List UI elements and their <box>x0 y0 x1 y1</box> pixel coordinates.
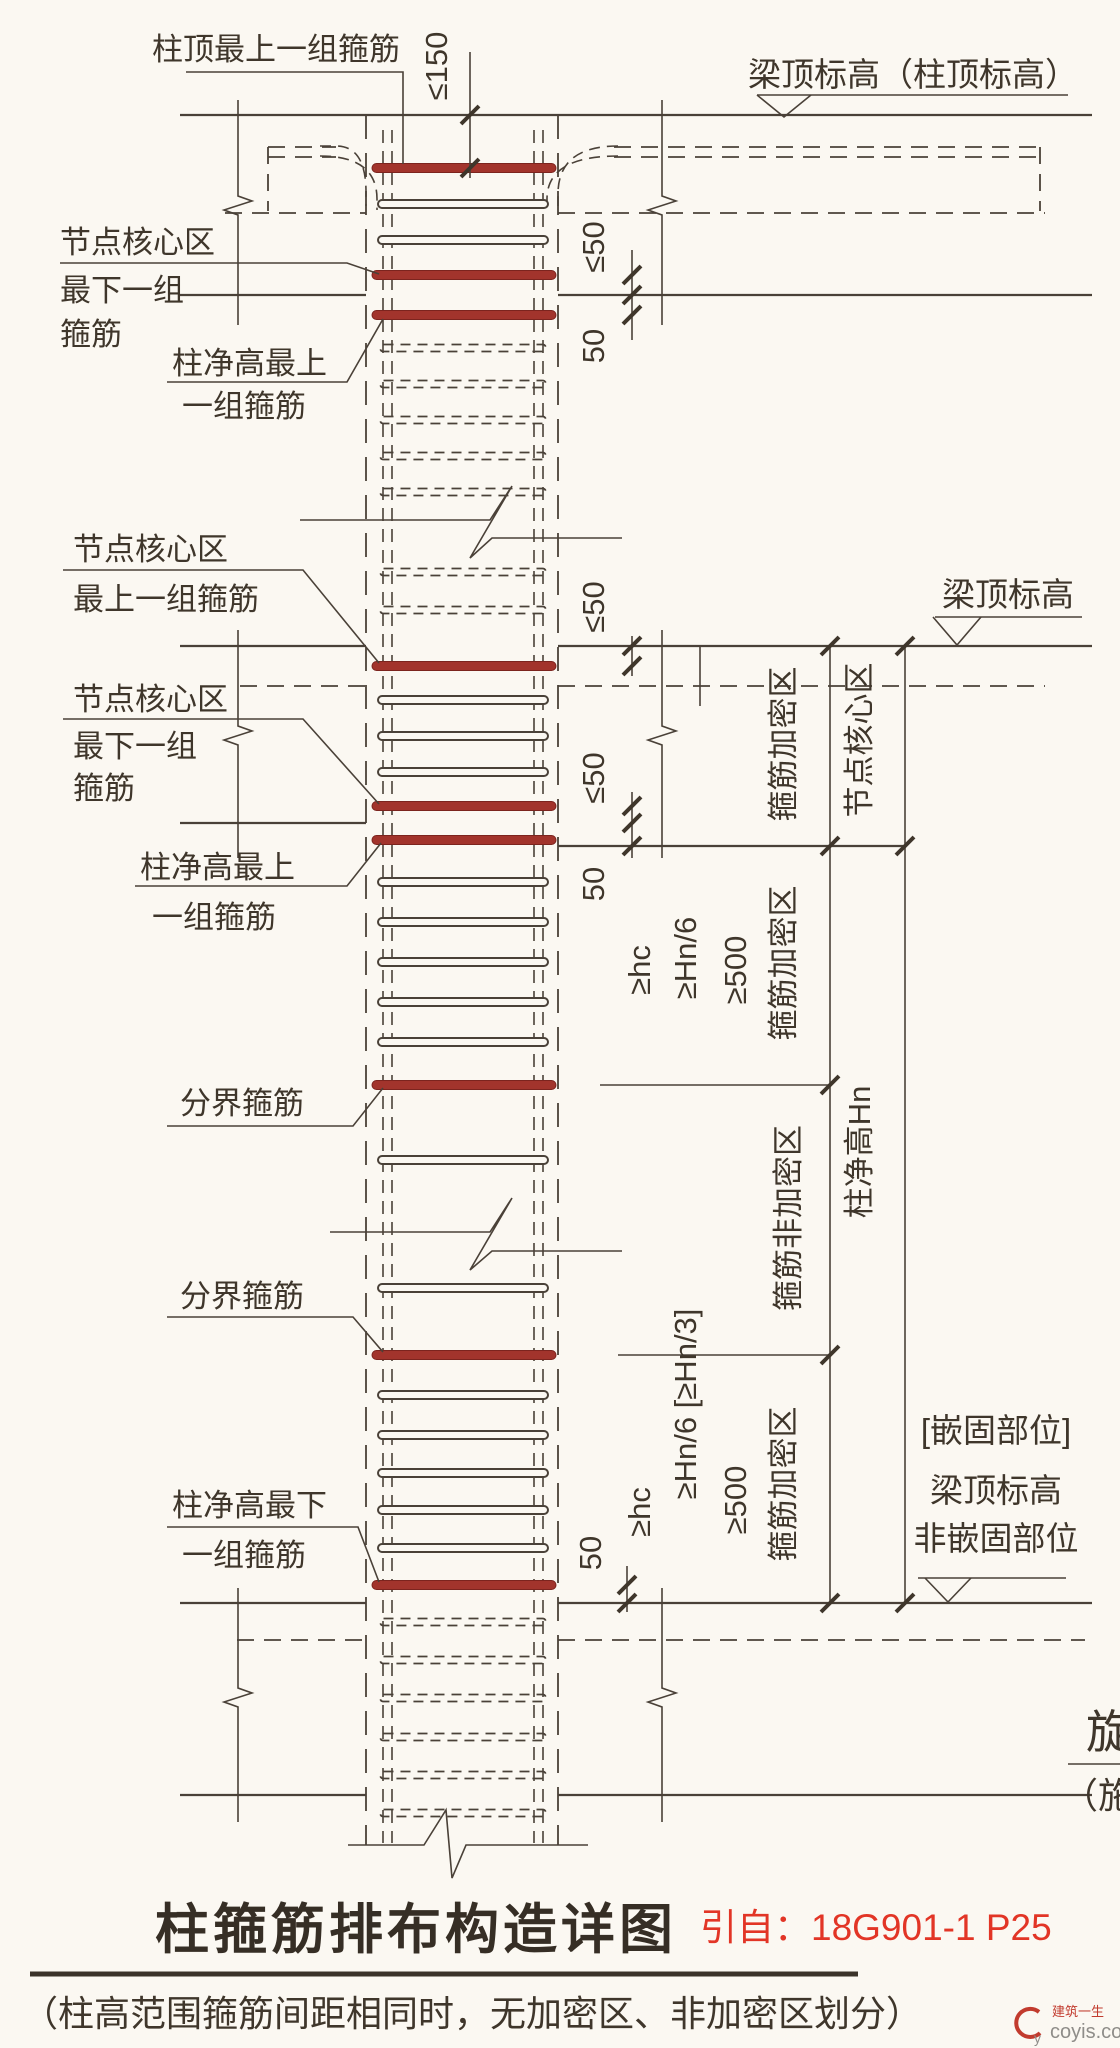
dim-max150: ≤150 <box>419 32 454 101</box>
callout-jointcore2-line1: 节点核心区 <box>73 532 228 567</box>
callout-jointcore1-line2: 最下一组 <box>60 273 184 308</box>
source-reference: 引自：18G901-1 P25 <box>700 1907 1052 1948</box>
stirrup-highlighted <box>372 1081 556 1090</box>
column-break-marks <box>300 486 622 1878</box>
stirrup-highlighted <box>372 271 556 280</box>
dim-hn6-mid: ≥Hn/6 <box>668 917 703 1000</box>
zone-joint-core: 节点核心区 <box>842 663 877 818</box>
stirrup-highlighted <box>372 802 556 811</box>
stirrup-highlighted <box>372 662 556 671</box>
watermark-brand: 建筑一生 <box>1052 2004 1104 2019</box>
callout-cleartop2-line1: 柱净高最上 <box>140 850 295 885</box>
stirrup <box>378 696 548 704</box>
level-symbol-bottom <box>918 1578 1066 1602</box>
stirrup <box>378 1038 548 1046</box>
callout-jointcore1-line1: 节点核心区 <box>60 225 215 260</box>
callout-jointcore3-line1: 节点核心区 <box>73 682 228 717</box>
callout-top-stirrup: 柱顶最上一组箍筋 <box>152 32 400 67</box>
edge-partial-note: （施 <box>1062 1775 1120 1816</box>
dim-500-bottom: ≥500 <box>718 1466 753 1535</box>
stirrup-hidden <box>380 1657 546 1664</box>
stirrup <box>378 878 548 886</box>
stirrup <box>378 768 548 776</box>
stirrup <box>378 1469 548 1477</box>
stirrup-arrangement-diagram: 柱顶最上一组箍筋 节点核心区 最下一组 箍筋 柱净高最上 一组箍筋 节点核心区 … <box>0 0 1120 2048</box>
zone-dense-top: 箍筋加密区 <box>766 667 801 822</box>
stirrup-hidden <box>380 345 546 352</box>
stirrup-hidden <box>380 489 546 496</box>
label-anchorage-line2: 梁顶标高 <box>930 1472 1062 1509</box>
dim-500-mid: ≥500 <box>718 936 753 1005</box>
dim-50-mid: 50 <box>576 867 611 901</box>
label-anchorage-line1: [嵌固部位] <box>921 1412 1071 1449</box>
drawing-title: 柱箍筋排布构造详图 <box>155 1900 677 1960</box>
callout-cleartop1-line1: 柱净高最上 <box>172 346 327 381</box>
stirrup <box>378 236 548 244</box>
level-symbol-top <box>757 95 1068 117</box>
zone-clear-height: 柱净高Hn <box>842 1086 877 1219</box>
stirrup-hidden <box>380 1695 546 1702</box>
callout-boundary-stirrup-2: 分界箍筋 <box>180 1279 304 1314</box>
stirrup-hidden <box>380 417 546 424</box>
stirrup-hidden <box>380 381 546 388</box>
watermark-site: coyis.com <box>1050 2021 1120 2043</box>
stirrups <box>372 164 556 1817</box>
footnote: （柱高范围箍筋间距相同时，无加密区、非加密区划分） <box>22 1993 922 2034</box>
callout-cleartop2-line2: 一组箍筋 <box>152 900 276 935</box>
label-beam-top-level-top: 梁顶标高（柱顶标高） <box>748 56 1078 93</box>
stirrup-hidden <box>380 569 546 576</box>
zone-dense-bottom: 箍筋加密区 <box>766 1407 801 1562</box>
stirrup-highlighted <box>372 164 556 173</box>
stirrup <box>378 732 548 740</box>
watermark-logo-y: y <box>1034 2030 1041 2046</box>
stirrup <box>378 1544 548 1552</box>
stirrup-hidden <box>380 1734 546 1741</box>
callout-jointcore3-line3: 箍筋 <box>73 771 135 806</box>
edge-partial-title: 旋 <box>1086 1706 1120 1758</box>
callout-jointcore3-line2: 最下一组 <box>73 729 197 764</box>
stirrup <box>378 918 548 926</box>
stirrup <box>378 1284 548 1292</box>
stirrup-hidden <box>380 1772 546 1779</box>
dim-hc-bottom: ≥hc <box>622 1487 657 1537</box>
stirrup <box>378 1431 548 1439</box>
dim-max50-mid2: ≤50 <box>576 752 611 804</box>
stirrup <box>378 1156 548 1164</box>
stirrup <box>378 998 548 1006</box>
zone-non-dense: 箍筋非加密区 <box>771 1125 806 1311</box>
column-stirrup-detail-sheet: 柱顶最上一组箍筋 节点核心区 最下一组 箍筋 柱净高最上 一组箍筋 节点核心区 … <box>0 0 1120 2048</box>
stirrup <box>378 958 548 966</box>
callout-jointcore1-line3: 箍筋 <box>60 317 122 352</box>
stirrup <box>378 1391 548 1399</box>
dim-hn6-hn3-bottom: ≥Hn/6 [≥Hn/3] <box>668 1309 703 1500</box>
stirrup-highlighted <box>372 1581 556 1590</box>
dim-max50-mid1: ≤50 <box>576 581 611 633</box>
callout-boundary-stirrup-1: 分界箍筋 <box>180 1086 304 1121</box>
stirrup-highlighted <box>372 1351 556 1360</box>
stirrup-hidden <box>380 453 546 460</box>
zone-dense-mid: 箍筋加密区 <box>766 886 801 1041</box>
stirrup <box>378 200 548 208</box>
stirrup-highlighted <box>372 836 556 845</box>
stirrup-hidden <box>380 607 546 614</box>
dim-50-top: 50 <box>576 329 611 363</box>
dim-max50-top: ≤50 <box>576 221 611 273</box>
stirrup-hidden <box>380 1810 546 1817</box>
dim-hc-mid: ≥hc <box>622 945 657 995</box>
dim-50-bottom: 50 <box>573 1536 608 1570</box>
callout-jointcore2-line2: 最上一组箍筋 <box>73 582 259 617</box>
callout-cleartop1-line2: 一组箍筋 <box>182 389 306 424</box>
label-anchorage-line3: 非嵌固部位 <box>914 1520 1079 1557</box>
stirrup <box>378 1506 548 1514</box>
callout-clearbottom-line2: 一组箍筋 <box>182 1538 306 1573</box>
callout-clearbottom-line1: 柱净高最下 <box>172 1488 327 1523</box>
level-symbol-mid <box>933 617 1082 645</box>
stirrup-hidden <box>380 1619 546 1626</box>
watermark: y 建筑一生 coyis.com <box>1016 2004 1120 2046</box>
label-beam-top-level-mid: 梁顶标高 <box>942 576 1074 613</box>
stirrup-highlighted <box>372 311 556 320</box>
